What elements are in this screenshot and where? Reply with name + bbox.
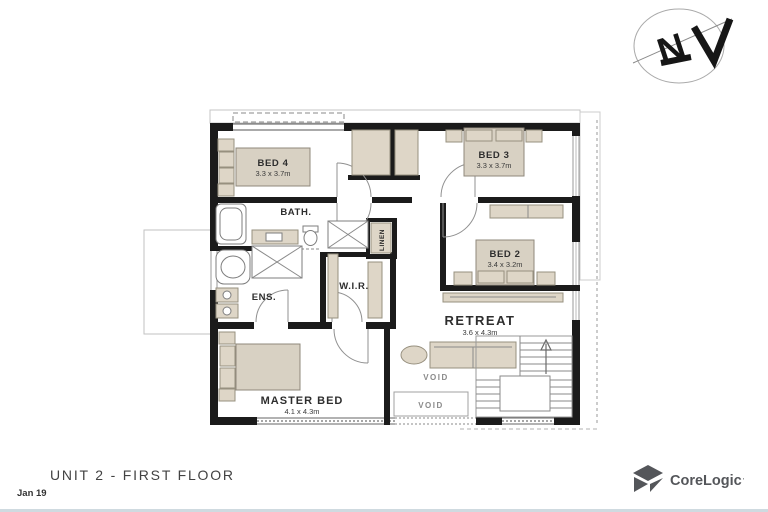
bed2-furniture bbox=[454, 205, 563, 285]
bed-icon bbox=[236, 344, 300, 390]
bedside-table-icon bbox=[219, 389, 235, 401]
bottom-wall bbox=[210, 417, 257, 425]
retreat-dims: 3.6 x 4.3m bbox=[462, 328, 497, 337]
wir-east-wall bbox=[390, 252, 396, 329]
floorplan-drawing: BED 4 3.3 x 3.7m BED 3 3.3 x 3.7m BATH. … bbox=[0, 0, 768, 512]
retreat-label: RETREAT bbox=[445, 313, 516, 328]
bed3-dims: 3.3 x 3.7m bbox=[476, 161, 511, 170]
stair-void bbox=[500, 376, 550, 411]
bed4-label: BED 4 bbox=[258, 158, 289, 169]
master-door bbox=[334, 329, 368, 363]
right-wall bbox=[572, 123, 580, 136]
ens-wir-wall bbox=[320, 252, 326, 329]
bed4-dims: 3.3 x 3.7m bbox=[255, 169, 290, 178]
robe-icon bbox=[395, 130, 418, 175]
linen-label: LINEN bbox=[379, 229, 386, 251]
robe-divider-wall bbox=[390, 127, 395, 180]
hall-robes bbox=[352, 130, 418, 175]
corelogic-logo-mark: ' bbox=[743, 478, 744, 485]
ens-label: ENS. bbox=[252, 292, 277, 303]
corelogic-logo: CoreLogic' bbox=[631, 463, 744, 499]
bedside-table-icon bbox=[537, 272, 555, 285]
bedside-table-icon bbox=[526, 130, 542, 142]
bath-label: BATH. bbox=[280, 207, 311, 218]
north-compass-icon: N bbox=[633, 9, 732, 83]
master-east-wall bbox=[384, 329, 390, 425]
left-terrace-outline bbox=[144, 230, 212, 334]
robe-shelf-icon bbox=[328, 254, 338, 318]
master-dims: 4.1 x 4.3m bbox=[284, 407, 319, 416]
bed2-label: BED 2 bbox=[490, 249, 521, 260]
pillow-icon bbox=[496, 130, 522, 141]
page-title: UNIT 2 - FIRST FLOOR bbox=[50, 467, 235, 483]
top-window-dashed bbox=[233, 113, 344, 122]
linen-wall bbox=[366, 218, 396, 222]
pillow-icon bbox=[220, 346, 235, 366]
robe-icon bbox=[490, 205, 563, 218]
pillow-icon bbox=[219, 168, 234, 183]
bed2-door bbox=[443, 203, 477, 237]
pillow-icon bbox=[466, 130, 492, 141]
void-upper-label: VOID bbox=[423, 373, 449, 382]
bedside-table-icon bbox=[218, 139, 234, 151]
master-label: MASTER BED bbox=[261, 395, 344, 407]
void-lower-label: VOID bbox=[418, 401, 444, 410]
ottoman-icon bbox=[401, 346, 427, 364]
bedside-table-icon bbox=[218, 184, 234, 196]
bed2-dims: 3.4 x 3.2m bbox=[487, 260, 522, 269]
bedside-table-icon bbox=[446, 130, 462, 142]
north-letter: N bbox=[652, 25, 690, 72]
bed2-south-wall bbox=[440, 285, 580, 291]
robe-icon bbox=[352, 130, 390, 175]
pillow-icon bbox=[220, 368, 235, 388]
pillow-icon bbox=[219, 152, 234, 167]
north-arrow-check bbox=[694, 19, 730, 61]
master-furniture bbox=[219, 332, 300, 401]
bedside-table-icon bbox=[219, 332, 235, 344]
bedside-table-icon bbox=[454, 272, 472, 285]
pillow-icon bbox=[478, 271, 504, 283]
wir-label: W.I.R. bbox=[339, 281, 368, 292]
date-label: Jan 19 bbox=[17, 488, 47, 499]
pillow-icon bbox=[507, 271, 533, 283]
robe-shelf-icon bbox=[368, 262, 382, 318]
corelogic-logo-icon bbox=[631, 463, 665, 499]
corelogic-logo-text: CoreLogic bbox=[670, 473, 742, 489]
bed3-label: BED 3 bbox=[479, 150, 510, 161]
